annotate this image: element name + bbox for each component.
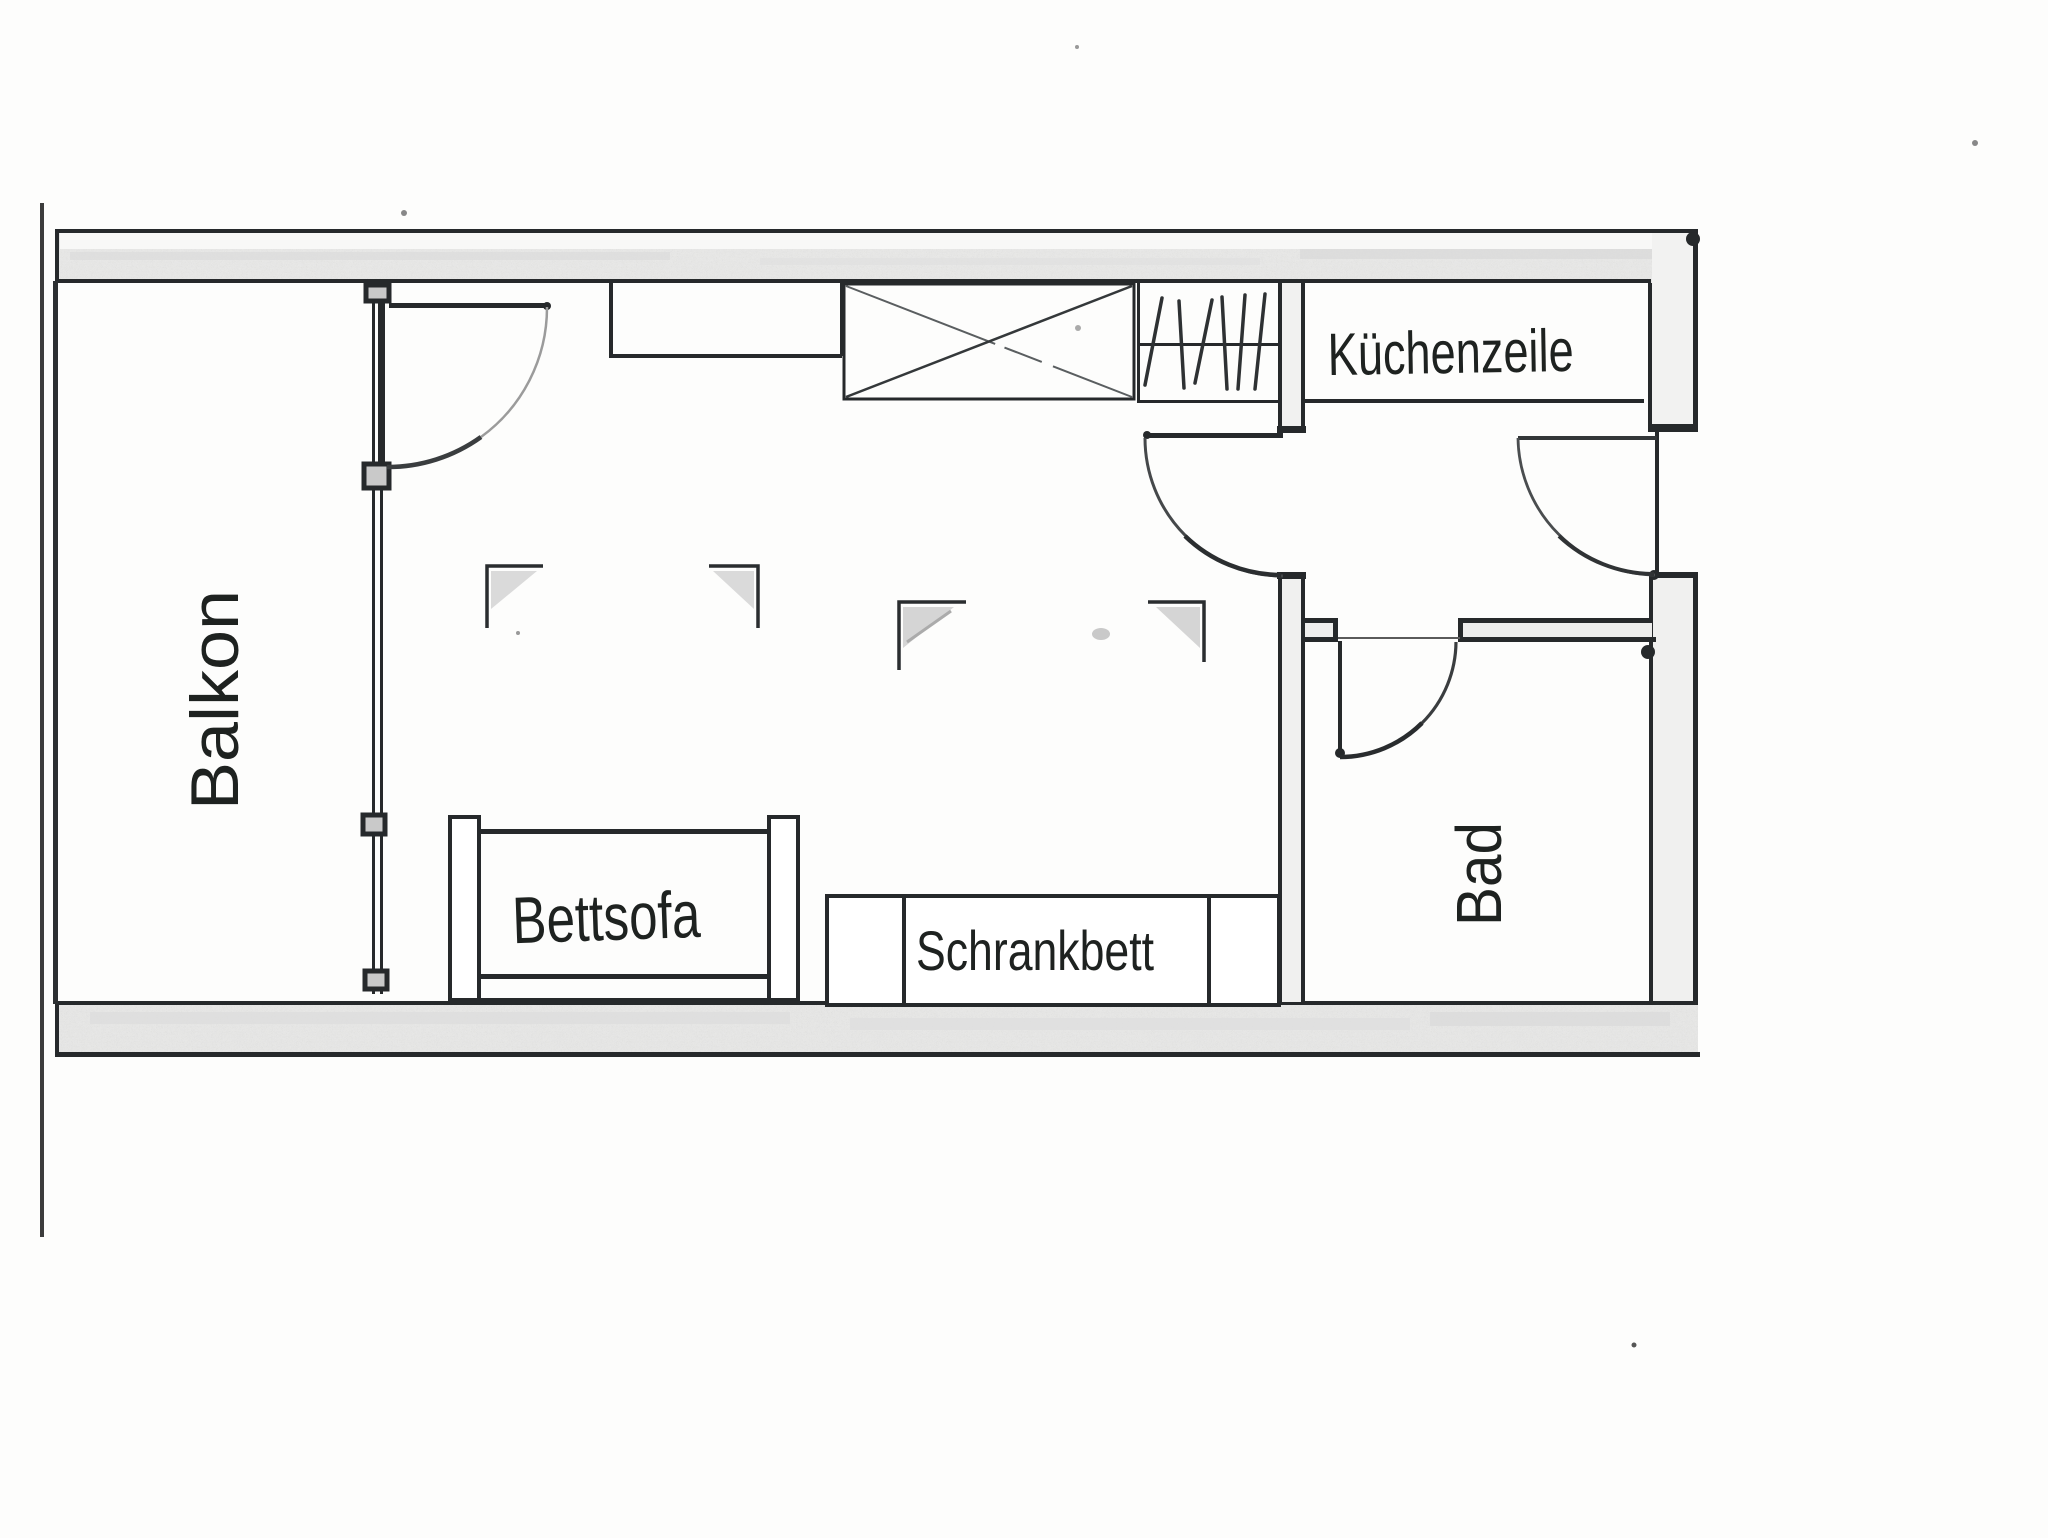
svg-text:Bettsofa: Bettsofa [511, 877, 702, 958]
svg-text:Balkon: Balkon [177, 590, 253, 810]
svg-text:Schrankbett: Schrankbett [916, 919, 1154, 982]
svg-text:Küchenzeile: Küchenzeile [1327, 317, 1574, 388]
svg-text:Bad: Bad [1443, 822, 1515, 926]
